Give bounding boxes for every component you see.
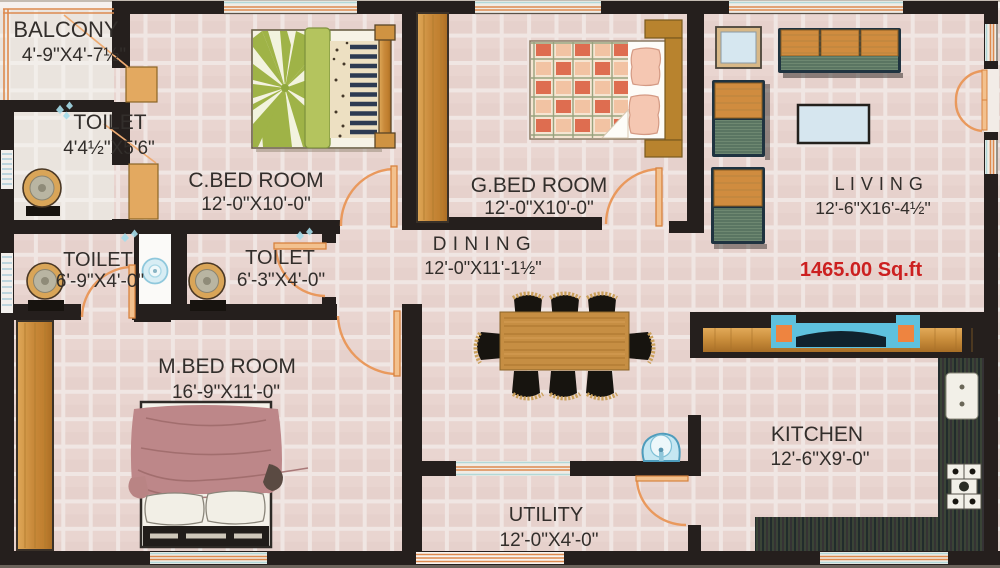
svg-text:TOILET: TOILET bbox=[73, 111, 146, 134]
svg-text:12'-6"X16'-4½": 12'-6"X16'-4½" bbox=[815, 198, 930, 218]
svg-text:BALCONY: BALCONY bbox=[13, 17, 118, 42]
svg-text:UTILITY: UTILITY bbox=[509, 504, 583, 526]
svg-text:6'-3"X4'-0": 6'-3"X4'-0" bbox=[237, 270, 325, 291]
svg-text:D I N I N G: D I N I N G bbox=[433, 234, 531, 255]
svg-text:1465.00 Sq.ft: 1465.00 Sq.ft bbox=[800, 259, 923, 281]
svg-text:KITCHEN: KITCHEN bbox=[771, 423, 863, 446]
svg-text:M.BED ROOM: M.BED ROOM bbox=[158, 355, 296, 378]
svg-text:L I V I N G: L I V I N G bbox=[835, 174, 924, 194]
svg-text:G.BED ROOM: G.BED ROOM bbox=[471, 174, 608, 197]
svg-text:6'-9"X4'-0": 6'-9"X4'-0" bbox=[56, 271, 144, 292]
svg-text:12'-0"X10'-0": 12'-0"X10'-0" bbox=[484, 198, 593, 219]
svg-text:16'-9"X11'-0": 16'-9"X11'-0" bbox=[172, 382, 280, 403]
svg-text:12'-0"X11'-1½": 12'-0"X11'-1½" bbox=[424, 258, 541, 278]
svg-text:4'4½"X5'6": 4'4½"X5'6" bbox=[63, 138, 155, 159]
svg-text:12'-0"X10'-0": 12'-0"X10'-0" bbox=[201, 194, 310, 215]
svg-text:4'-9"X4'-7½": 4'-9"X4'-7½" bbox=[22, 45, 126, 66]
svg-text:TOILET: TOILET bbox=[245, 247, 315, 269]
svg-text:12'-6"X9'-0": 12'-6"X9'-0" bbox=[771, 449, 870, 470]
svg-text:C.BED ROOM: C.BED ROOM bbox=[188, 169, 323, 192]
svg-text:12'-0"X4'-0": 12'-0"X4'-0" bbox=[500, 530, 599, 551]
svg-text:TOILET: TOILET bbox=[63, 249, 133, 271]
